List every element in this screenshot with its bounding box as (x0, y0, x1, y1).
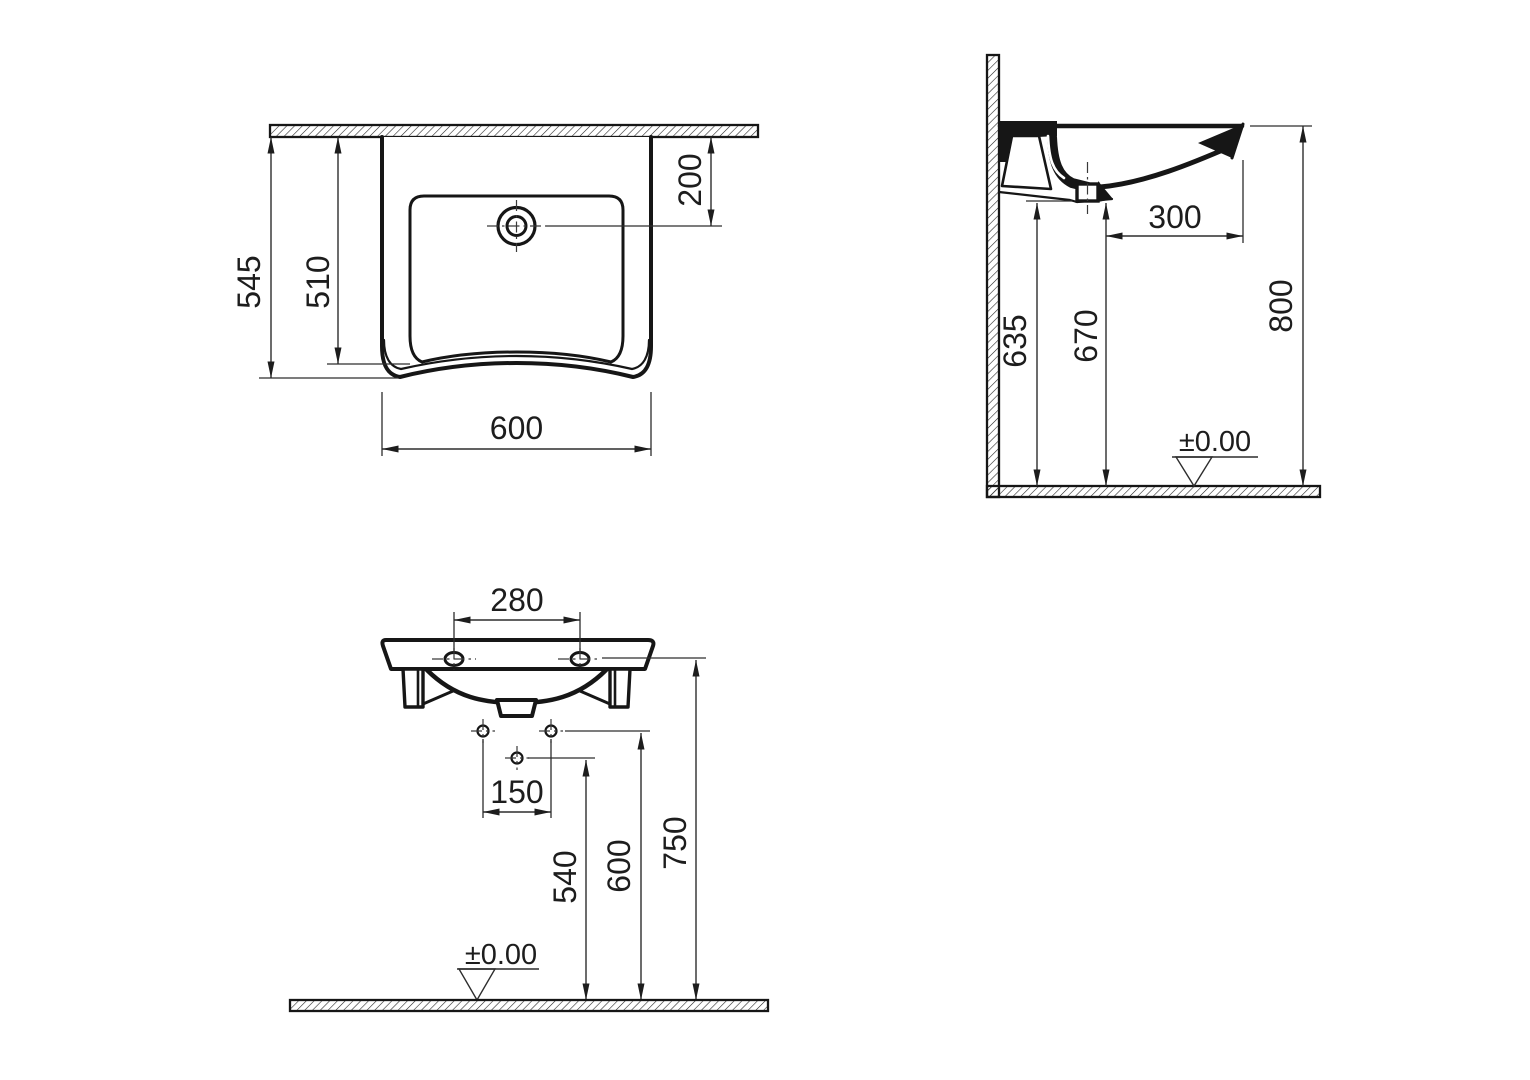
front-datum-label: ±0.00 (465, 939, 537, 971)
dim-635-label: 635 (997, 314, 1033, 367)
front-left-web-line (423, 691, 453, 704)
side-datum: ±0.00 (1172, 426, 1258, 486)
side-floor-hatch (987, 486, 1320, 497)
front-datum: ±0.00 (457, 939, 539, 1000)
side-view: 300 635 670 800 ±0.00 (987, 55, 1320, 497)
plan-view: 545 510 200 600 (231, 125, 758, 456)
side-datum-label: ±0.00 (1179, 426, 1251, 458)
washbasin-dimension-drawing: 545 510 200 600 300 (0, 0, 1530, 1080)
dim-200-label: 200 (672, 153, 708, 206)
dim-300-label: 300 (1148, 199, 1201, 235)
dim-280-label: 280 (490, 582, 543, 618)
side-datum-triangle-icon (1176, 457, 1212, 486)
plan-wall-hatch (270, 125, 758, 137)
front-view: 280 150 540 600 750 ±0.00 (290, 582, 768, 1011)
front-right-leg (610, 669, 630, 707)
side-bracket-outline (1002, 136, 1051, 189)
dim-510-label: 510 (300, 255, 336, 308)
dim-750-label: 750 (657, 816, 693, 869)
dim-545-label: 545 (231, 255, 267, 308)
dim-600h-label: 600 (601, 839, 637, 892)
dim-670-label: 670 (1068, 309, 1104, 362)
dim-540-label: 540 (547, 850, 583, 903)
front-drain-box (497, 700, 536, 716)
front-right-web-line (580, 691, 610, 704)
side-trap-curve (1052, 137, 1088, 187)
dim-600-label: 600 (490, 410, 543, 446)
front-floor-hatch (290, 1000, 768, 1011)
technical-drawing-page: 545 510 200 600 300 (0, 0, 1530, 1080)
dim-800-label: 800 (1263, 279, 1299, 332)
side-wall-hatch (987, 55, 999, 497)
front-apron-outline (382, 640, 653, 669)
dim-150-label: 150 (490, 774, 543, 810)
side-bowl-floor-curve (1100, 146, 1232, 187)
plan-basin-fill (382, 137, 651, 377)
front-left-leg (403, 669, 423, 707)
front-datum-triangle-icon (459, 969, 495, 1000)
